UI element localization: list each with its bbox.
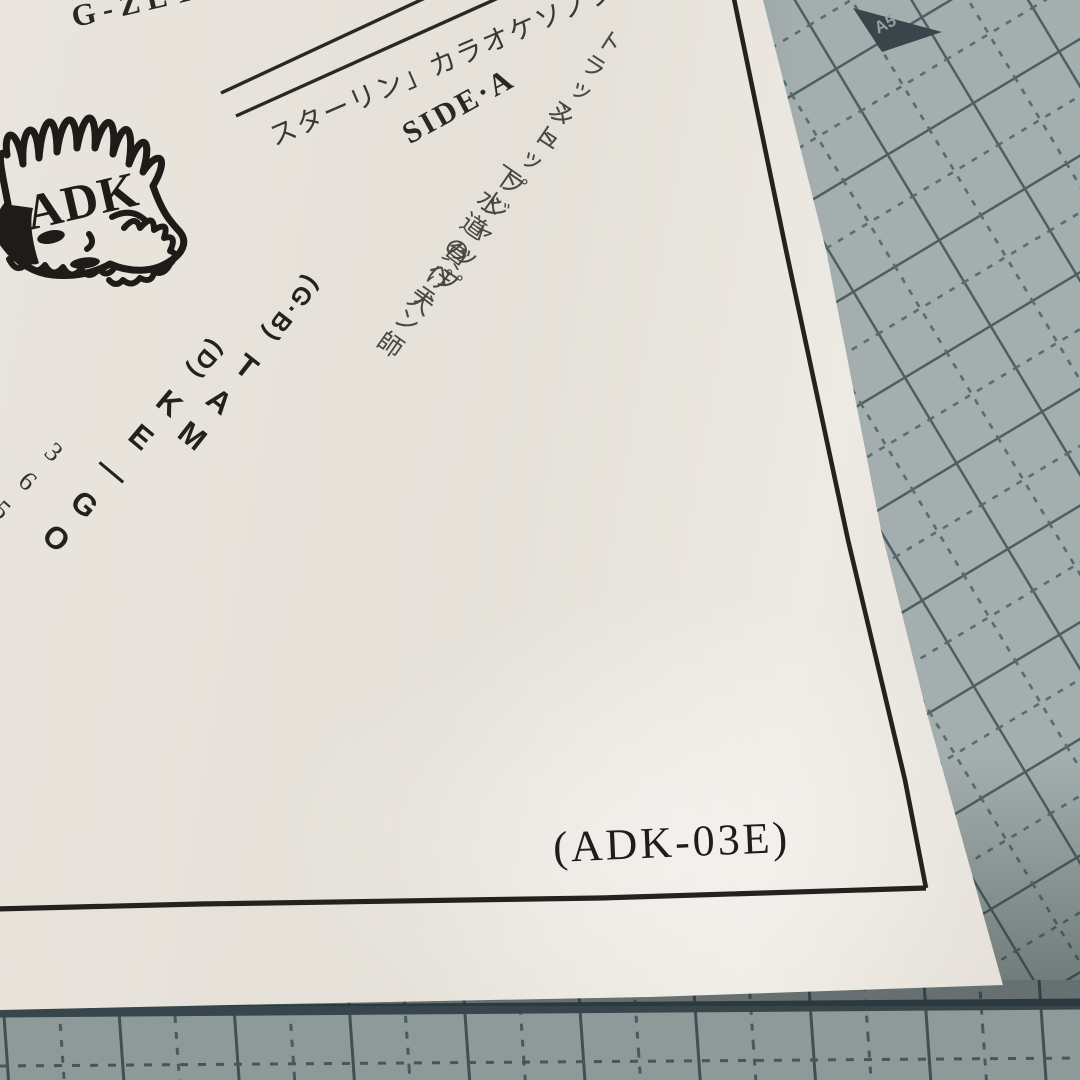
- photo-scene: A5 G-ZET: [0, 0, 1080, 1080]
- credit-tam-role: (G·B): [255, 270, 326, 349]
- catalog-number: (ADK-03E): [552, 812, 791, 873]
- karaoke-title: スターリン」カラオケソノシート: [262, 0, 676, 154]
- band-name: G-ZET: [68, 0, 204, 35]
- adk-label-logo: ADK: [0, 76, 224, 288]
